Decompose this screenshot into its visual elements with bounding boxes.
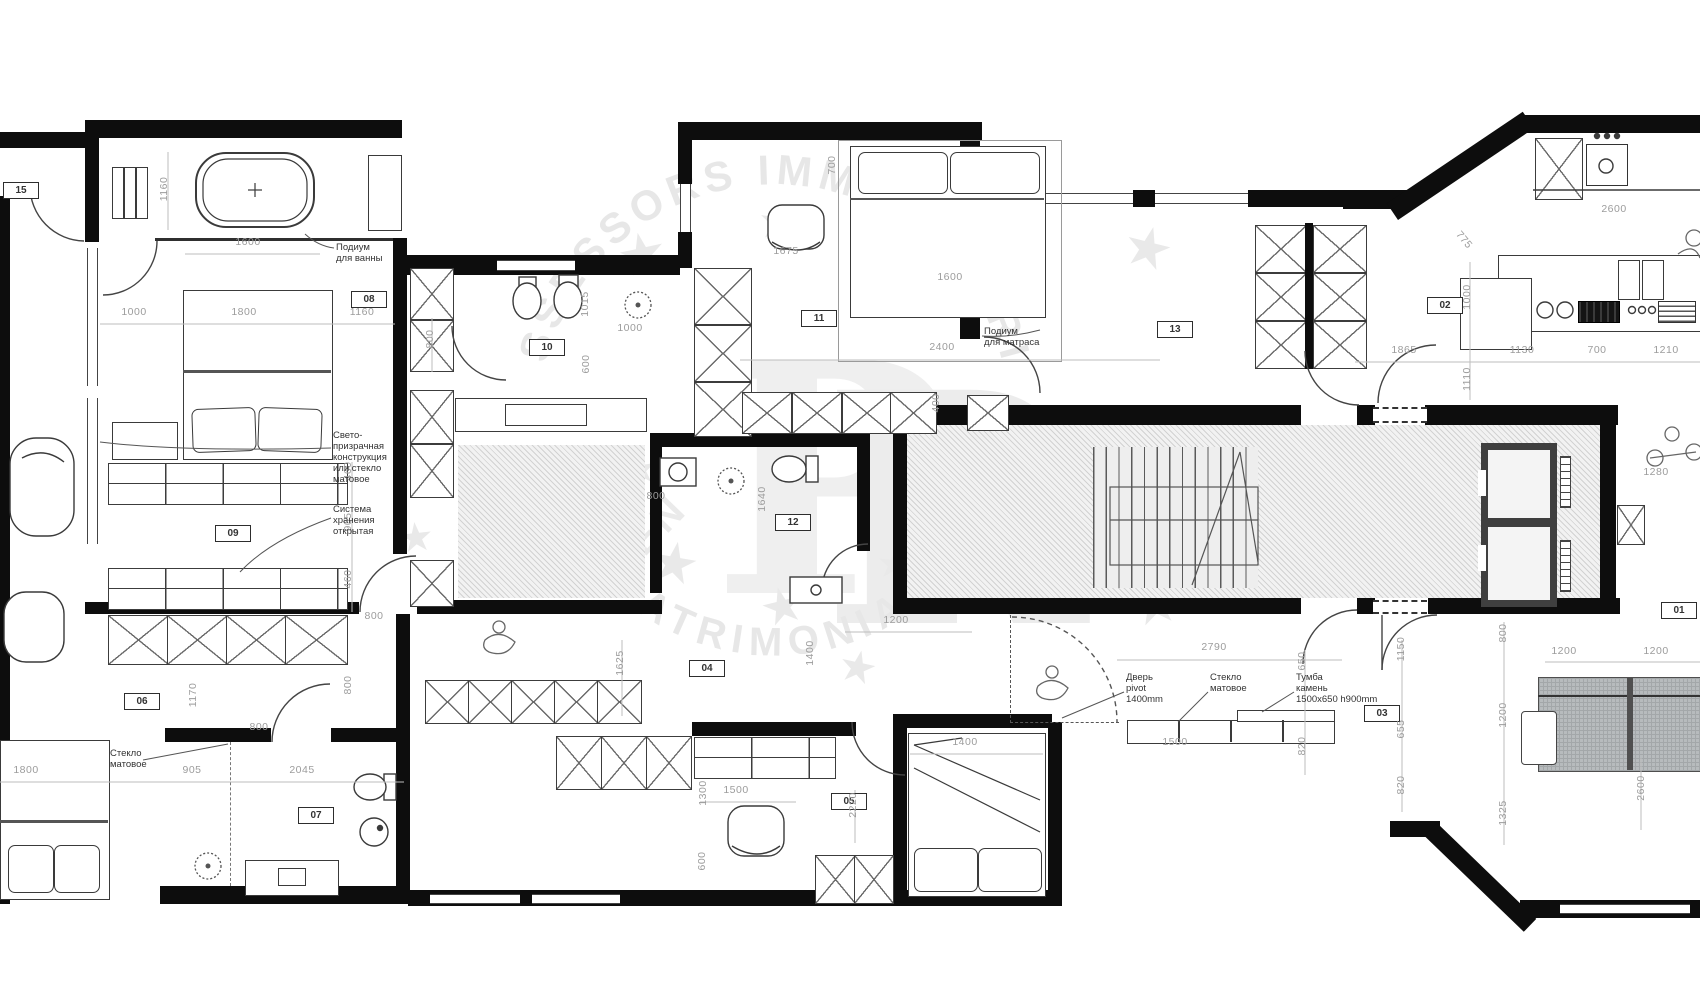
dimension-text: 1110	[1461, 356, 1473, 402]
dimension-text: 1500	[713, 784, 759, 796]
dimension-text: 1200	[1633, 645, 1679, 657]
annotation-text: Стекло матовое	[110, 748, 147, 770]
pivot-door-arc	[1012, 617, 1117, 722]
dimension-text: 1000	[111, 306, 157, 318]
dimension-text: 2600	[1591, 203, 1637, 215]
annotation-text: Подиум для матраса	[984, 326, 1039, 348]
dimension-text: 1000	[1461, 274, 1473, 320]
shower-head-dots	[206, 303, 734, 869]
dimension-text: 1160	[158, 166, 170, 212]
dimension-text: 1625	[614, 640, 626, 686]
dimension-text: 905	[169, 764, 215, 776]
annotation-text: Подиум для ванны	[336, 242, 382, 264]
room-number: 07	[298, 807, 334, 824]
dimension-text: 1170	[187, 672, 199, 718]
dimension-text: 1640	[756, 476, 768, 522]
room-number: 12	[775, 514, 811, 531]
stair-linework	[1110, 452, 1258, 585]
dimension-text: 1600	[927, 271, 973, 283]
dimension-text: 1865	[1381, 344, 1427, 356]
dimension-text: 1400	[942, 736, 988, 748]
dimension-text: 700	[1574, 344, 1620, 356]
dimension-text: 1200	[1497, 692, 1509, 738]
dimension-text: 2220	[847, 782, 859, 828]
annotation-text: Тумба камень 1500x650 h900mm	[1296, 672, 1377, 705]
annotation-leaders	[100, 234, 1294, 760]
dimension-text: 1000	[607, 322, 653, 334]
dimension-text: 1600	[225, 236, 271, 248]
dimension-text: 1210	[1643, 344, 1689, 356]
room-number: 10	[529, 339, 565, 356]
dimension-text: 460	[342, 556, 354, 602]
annotation-text: Система хранения открытая	[333, 504, 375, 537]
dimension-text: 1800	[221, 306, 267, 318]
annotation-text: Дверь pivot 1400mm	[1126, 672, 1163, 705]
dimension-text: 2400	[919, 341, 965, 353]
bathtub	[196, 153, 314, 227]
room-number: 06	[124, 693, 160, 710]
dimension-text: 2790	[1191, 641, 1237, 653]
shower-heads	[195, 292, 744, 879]
dimension-text: 1800	[3, 764, 49, 776]
annotation-text: Свето- призрачная конструкция или стекло…	[333, 430, 387, 485]
room-number: 01	[1661, 602, 1697, 619]
dimension-text: 1200	[873, 614, 919, 626]
room-number: 13	[1157, 321, 1193, 338]
dimension-text: 2045	[279, 764, 325, 776]
dimension-text: 600	[696, 838, 708, 884]
dimension-text: 655	[1395, 706, 1407, 752]
dimension-text: 800	[351, 610, 397, 622]
dimension-text: 800	[424, 316, 436, 362]
room-number: 15	[3, 182, 39, 199]
dimension-text: 1015	[579, 281, 591, 327]
dimension-text: 1300	[697, 770, 709, 816]
dimension-text: 1130	[1499, 344, 1545, 356]
bed-fold-lines	[914, 738, 1040, 832]
dimension-text: 1675	[763, 245, 809, 257]
dimension-text: 1500	[1152, 736, 1198, 748]
room-number: 02	[1427, 297, 1463, 314]
dimension-text: 1400	[804, 630, 816, 676]
dimension-text: 1280	[1633, 466, 1679, 478]
room-number: 09	[215, 525, 251, 542]
dimension-text: 2600	[1635, 765, 1647, 811]
dimension-text: 1160	[339, 306, 385, 318]
dimension-text: 800	[236, 721, 282, 733]
dimension-text: 800	[633, 490, 679, 502]
room-number: 11	[801, 310, 837, 327]
dimension-text: 700	[826, 142, 838, 188]
dimension-text: 1200	[1541, 645, 1587, 657]
floor-plan-canvas: P R ASSESSORS IMMOBILIARIS PATRIMONIAL M…	[0, 0, 1700, 1000]
dimension-text: 800	[1497, 610, 1509, 656]
dimension-text: 400	[930, 380, 942, 426]
annotation-text: Стекло матовое	[1210, 672, 1247, 694]
dimension-text: 820	[1395, 762, 1407, 808]
dimension-text: 1150	[1395, 626, 1407, 672]
dimension-lines	[0, 152, 1700, 845]
dimension-text: 1325	[1497, 790, 1509, 836]
dimension-text: 820	[1296, 723, 1308, 769]
room-number: 04	[689, 660, 725, 677]
dimension-text: 800	[342, 662, 354, 708]
dimension-text: 600	[580, 341, 592, 387]
toilets-and-sinks	[354, 134, 1700, 847]
